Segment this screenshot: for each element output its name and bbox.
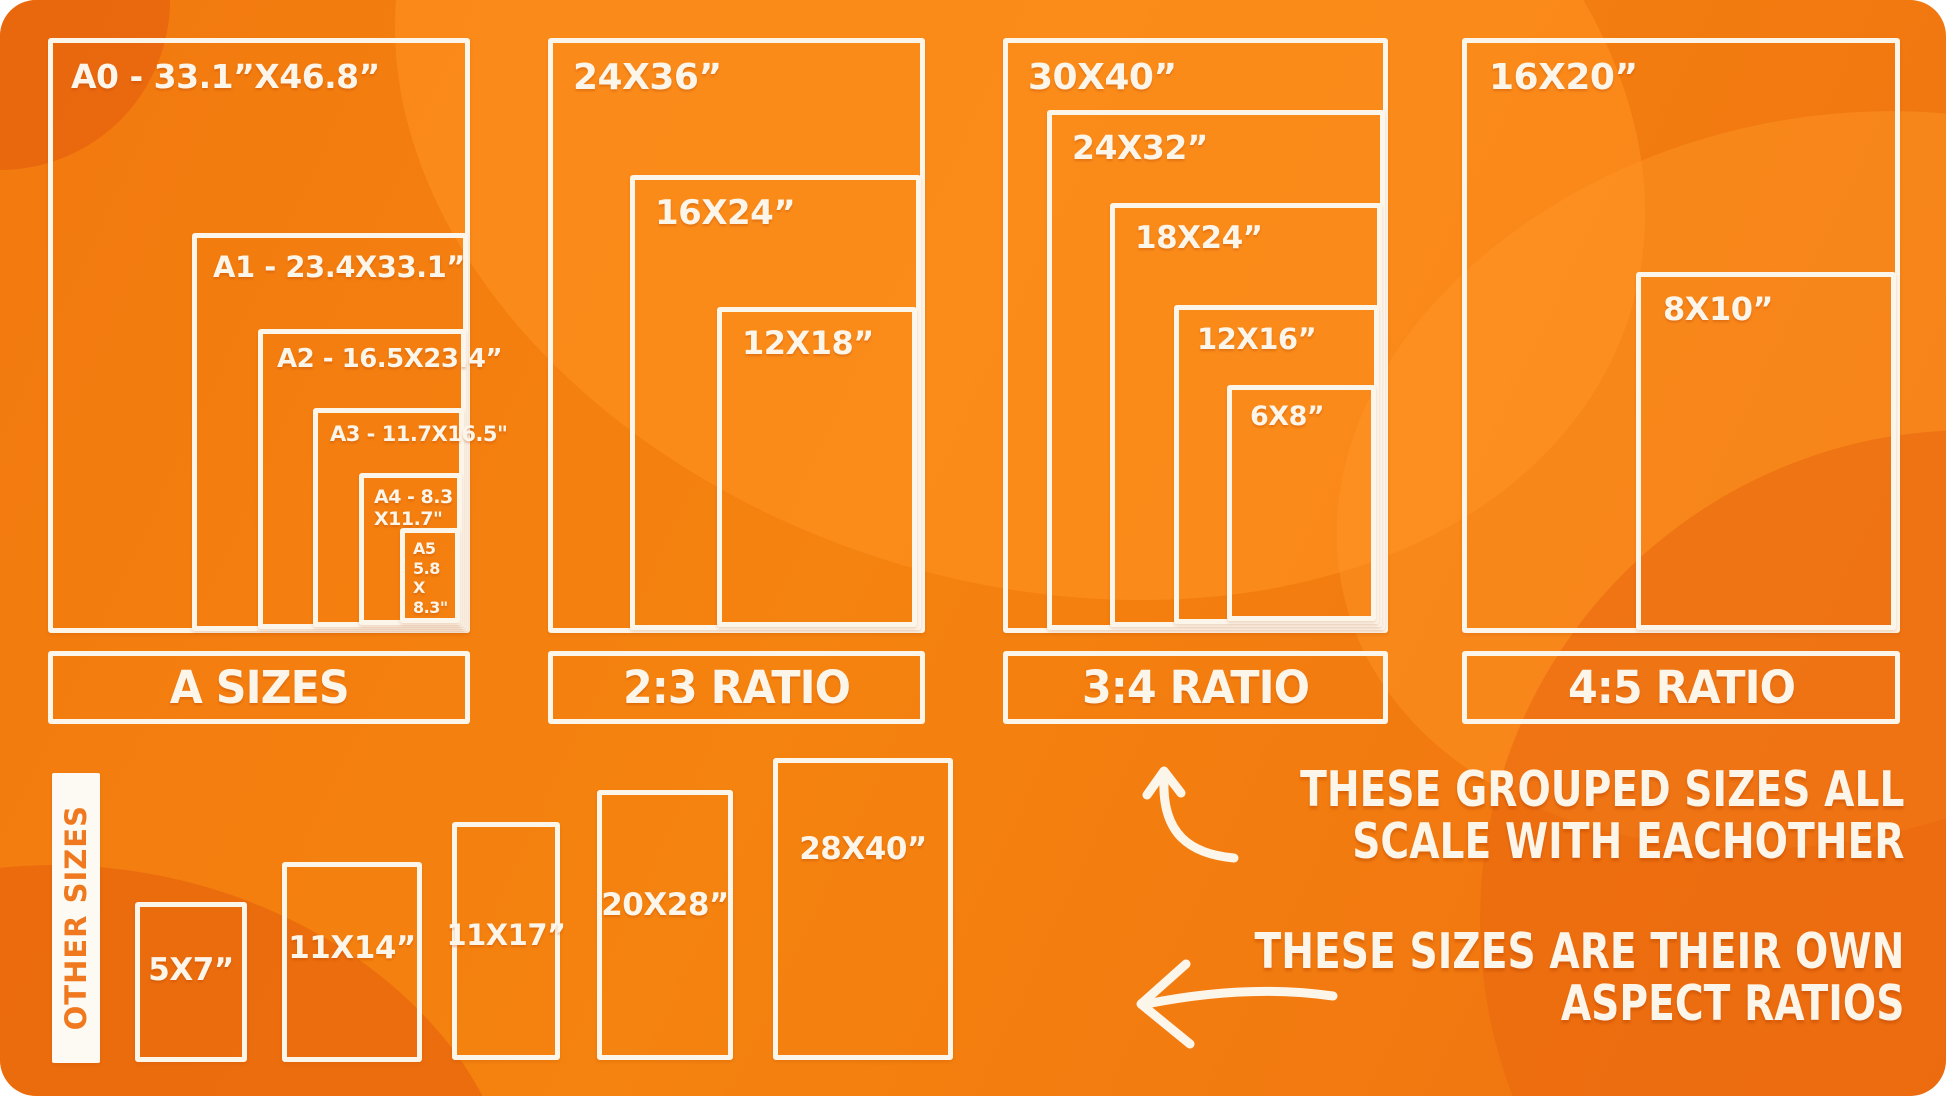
size-label-a3: A3 - 11.7X16.5" bbox=[330, 422, 507, 446]
size-box-11x14: 11X14” bbox=[282, 862, 422, 1062]
group-label-4-5-ratio: 4:5 RATIO bbox=[1462, 651, 1900, 724]
size-label-16x24: 16X24” bbox=[655, 193, 795, 233]
group-label-2-3-ratio-text: 2:3 RATIO bbox=[623, 661, 850, 714]
size-label-30x40: 30X40” bbox=[1028, 57, 1177, 98]
own-ratio-note: THESE SIZES ARE THEIR OWNASPECT RATIOS bbox=[1254, 926, 1904, 1030]
size-label-28x40: 28X40” bbox=[799, 763, 927, 867]
size-label-11x17: 11X17” bbox=[446, 918, 565, 952]
size-label-24x36: 24X36” bbox=[573, 57, 722, 98]
grouped-sizes-note: THESE GROUPED SIZES ALLSCALE WITH EACHOT… bbox=[1300, 764, 1904, 868]
size-label-a5-line3: X bbox=[413, 578, 425, 597]
own-ratio-note-line1: THESE SIZES ARE THEIR OWN bbox=[1254, 923, 1904, 980]
size-box-20x28: 20X28” bbox=[597, 790, 733, 1060]
size-label-a5: A55.8X8.3" bbox=[413, 539, 448, 617]
size-box-6x8: 6X8” bbox=[1227, 385, 1376, 621]
size-label-a1: A1 - 23.4X33.1” bbox=[213, 250, 465, 284]
size-box-a5: A55.8X8.3" bbox=[400, 528, 460, 623]
size-label-12x18: 12X18” bbox=[742, 324, 874, 362]
size-label-16x20: 16X20” bbox=[1489, 57, 1638, 98]
curved-up-arrow-icon bbox=[1138, 762, 1242, 864]
size-label-11x14: 11X14” bbox=[288, 930, 416, 966]
size-box-28x40: 28X40” bbox=[773, 758, 953, 1060]
size-label-12x16: 12X16” bbox=[1197, 322, 1316, 356]
group-label-a-sizes: A SIZES bbox=[48, 651, 470, 724]
size-label-a5-line1: A5 bbox=[413, 539, 436, 558]
size-box-5x7: 5X7” bbox=[135, 902, 247, 1062]
size-label-a5-line4: 8.3" bbox=[413, 598, 448, 617]
grouped-sizes-note-line2: SCALE WITH EACHOTHER bbox=[1352, 813, 1904, 870]
size-box-11x17: 11X17” bbox=[452, 822, 560, 1060]
group-label-4-5-ratio-text: 4:5 RATIO bbox=[1567, 661, 1794, 714]
size-label-5x7: 5X7” bbox=[148, 952, 233, 988]
size-label-6x8: 6X8” bbox=[1250, 401, 1324, 432]
size-label-a4: A4 - 8.3X11.7" bbox=[374, 486, 453, 531]
group-label-a-sizes-text: A SIZES bbox=[169, 661, 348, 714]
size-label-a5-line2: 5.8 bbox=[413, 559, 440, 578]
own-ratio-note-line2: ASPECT RATIOS bbox=[1560, 975, 1904, 1032]
group-label-3-4-ratio-text: 3:4 RATIO bbox=[1082, 661, 1309, 714]
size-label-18x24: 18X24” bbox=[1135, 220, 1263, 256]
other-sizes-banner: OTHER SIZES bbox=[52, 773, 100, 1063]
size-box-8x10: 8X10” bbox=[1636, 272, 1896, 630]
other-sizes-banner-text: OTHER SIZES bbox=[59, 805, 93, 1030]
size-label-20x28: 20X28” bbox=[601, 887, 729, 923]
group-label-2-3-ratio: 2:3 RATIO bbox=[548, 651, 925, 724]
size-label-8x10: 8X10” bbox=[1663, 290, 1773, 328]
size-label-a0: A0 - 33.1”X46.8” bbox=[71, 57, 380, 96]
size-label-a2: A2 - 16.5X23.4” bbox=[277, 344, 502, 374]
size-label-24x32: 24X32” bbox=[1072, 128, 1208, 167]
size-label-a4-line1: A4 - 8.3 bbox=[374, 486, 453, 508]
grouped-sizes-note-line1: THESE GROUPED SIZES ALL bbox=[1300, 761, 1904, 818]
group-label-3-4-ratio: 3:4 RATIO bbox=[1003, 651, 1388, 724]
size-box-12x18: 12X18” bbox=[717, 307, 917, 627]
poster-size-chart: A0 - 33.1”X46.8” A1 - 23.4X33.1” A2 - 16… bbox=[0, 0, 1946, 1096]
